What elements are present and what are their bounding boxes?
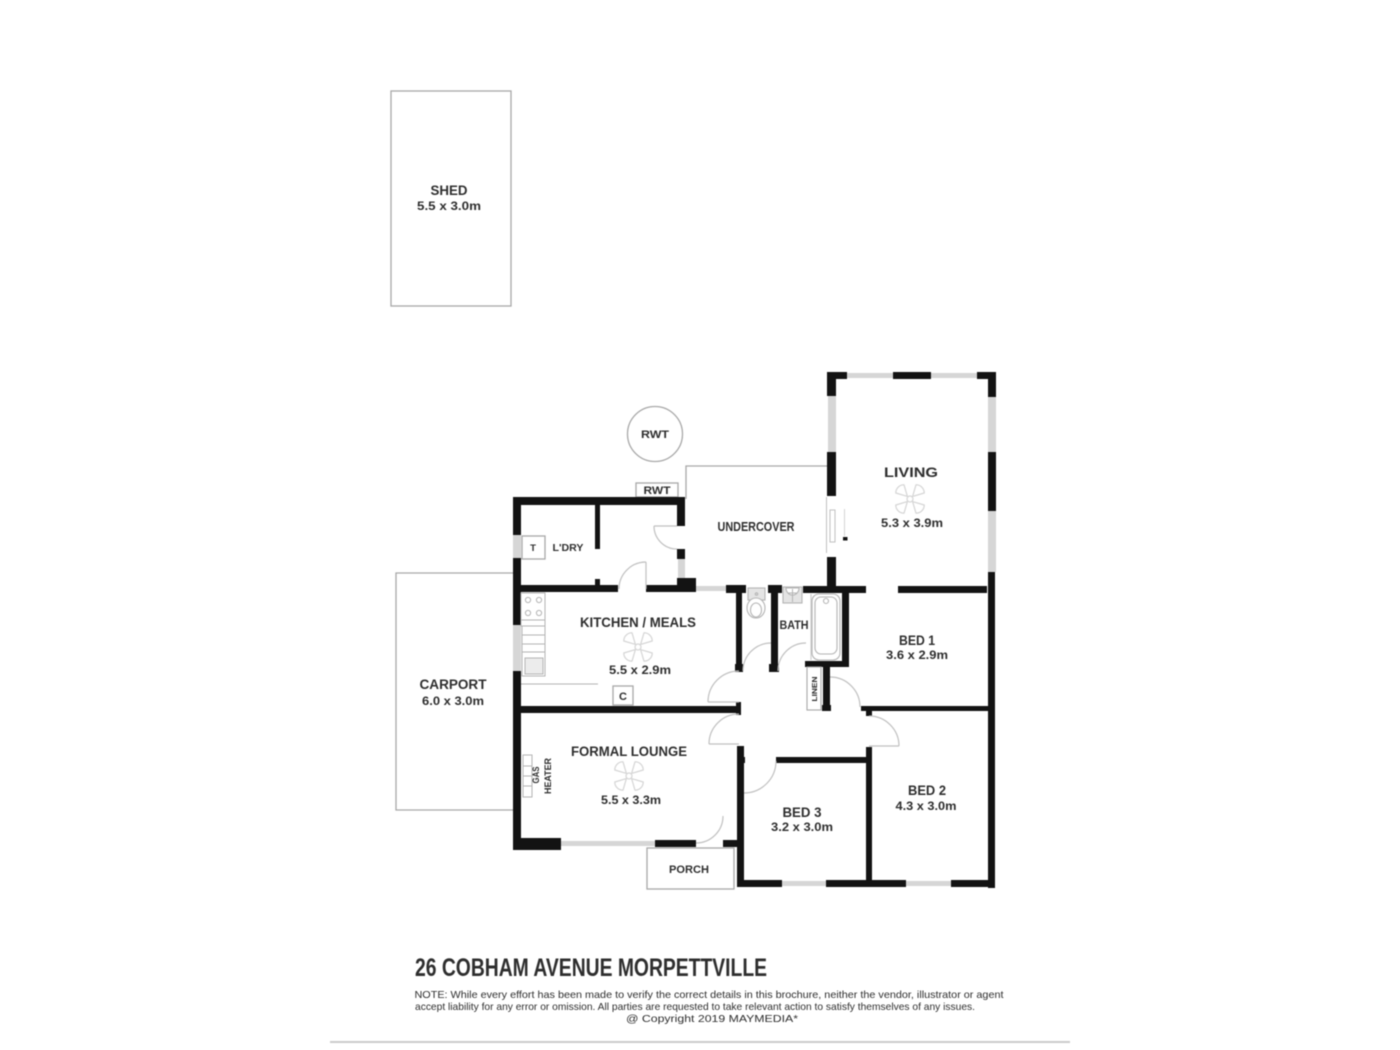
svg-text:CARPORT: CARPORT bbox=[420, 677, 488, 692]
svg-text:5.5 x 3.3m: 5.5 x 3.3m bbox=[601, 793, 661, 807]
svg-text:RWT: RWT bbox=[641, 429, 669, 441]
svg-text:BED 2: BED 2 bbox=[908, 783, 946, 798]
svg-text:BED 1: BED 1 bbox=[899, 633, 935, 648]
svg-text:LIVING: LIVING bbox=[884, 465, 938, 480]
svg-text:5.3 x 3.9m: 5.3 x 3.9m bbox=[881, 516, 943, 530]
svg-text:UNDERCOVER: UNDERCOVER bbox=[718, 519, 795, 534]
svg-text:FORMAL LOUNGE: FORMAL LOUNGE bbox=[571, 744, 687, 759]
svg-text:KITCHEN / MEALS: KITCHEN / MEALS bbox=[580, 615, 696, 630]
svg-text:LINEN: LINEN bbox=[810, 677, 819, 702]
svg-text:SHED: SHED bbox=[431, 183, 468, 198]
svg-text:T: T bbox=[530, 543, 536, 554]
svg-text:accept liability for any error: accept liability for any error or omissi… bbox=[415, 1001, 975, 1013]
svg-text:@ Copyright 2019 MAYMEDIA*: @ Copyright 2019 MAYMEDIA* bbox=[626, 1013, 798, 1025]
svg-text:6.0 x 3.0m: 6.0 x 3.0m bbox=[422, 694, 484, 708]
svg-text:RWT: RWT bbox=[644, 485, 671, 497]
svg-text:3.6 x 2.9m: 3.6 x 2.9m bbox=[886, 648, 948, 662]
svg-text:PORCH: PORCH bbox=[669, 864, 709, 876]
svg-text:5.5 x 3.0m: 5.5 x 3.0m bbox=[417, 199, 481, 213]
svg-text:C: C bbox=[619, 691, 627, 703]
svg-text:5.5 x 2.9m: 5.5 x 2.9m bbox=[609, 663, 671, 677]
svg-text:NOTE: While every effort has b: NOTE: While every effort has been made t… bbox=[415, 989, 1004, 1001]
svg-text:GAS: GAS bbox=[531, 767, 541, 784]
svg-text:L'DRY: L'DRY bbox=[553, 542, 584, 554]
svg-text:HEATER: HEATER bbox=[543, 758, 553, 794]
svg-text:BED 3: BED 3 bbox=[783, 805, 822, 820]
svg-text:3.2 x 3.0m: 3.2 x 3.0m bbox=[771, 820, 833, 834]
svg-text:4.3 x 3.0m: 4.3 x 3.0m bbox=[896, 799, 957, 813]
svg-text:BATH: BATH bbox=[780, 620, 809, 632]
svg-text:26 COBHAM AVENUE MORPETTVILLE: 26 COBHAM AVENUE MORPETTVILLE bbox=[415, 954, 767, 982]
